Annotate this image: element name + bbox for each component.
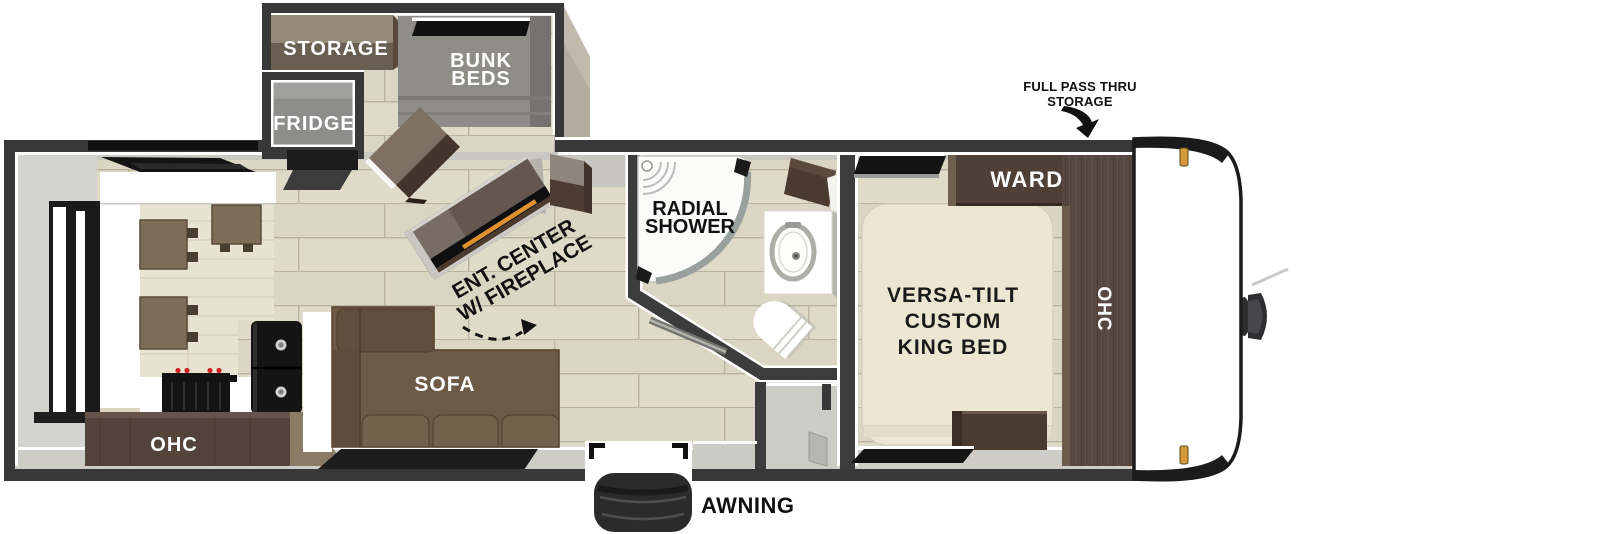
svg-text:SOFA: SOFA [414,373,475,396]
svg-text:AWNING: AWNING [701,493,794,518]
svg-text:FULL PASS THRU: FULL PASS THRU [1023,79,1137,94]
svg-text:WARD: WARD [990,167,1063,192]
svg-text:OHC: OHC [150,434,197,456]
svg-text:STORAGE: STORAGE [1047,94,1113,109]
svg-text:STORAGE: STORAGE [283,38,389,60]
svg-text:SHOWER: SHOWER [645,216,736,238]
svg-text:OHC: OHC [1093,286,1114,331]
svg-text:VERSA-TILT: VERSA-TILT [887,284,1019,307]
svg-text:KING BED: KING BED [898,336,1009,359]
svg-text:FRIDGE: FRIDGE [273,113,355,135]
svg-text:BEDS: BEDS [451,68,511,90]
svg-text:CUSTOM: CUSTOM [905,310,1002,333]
